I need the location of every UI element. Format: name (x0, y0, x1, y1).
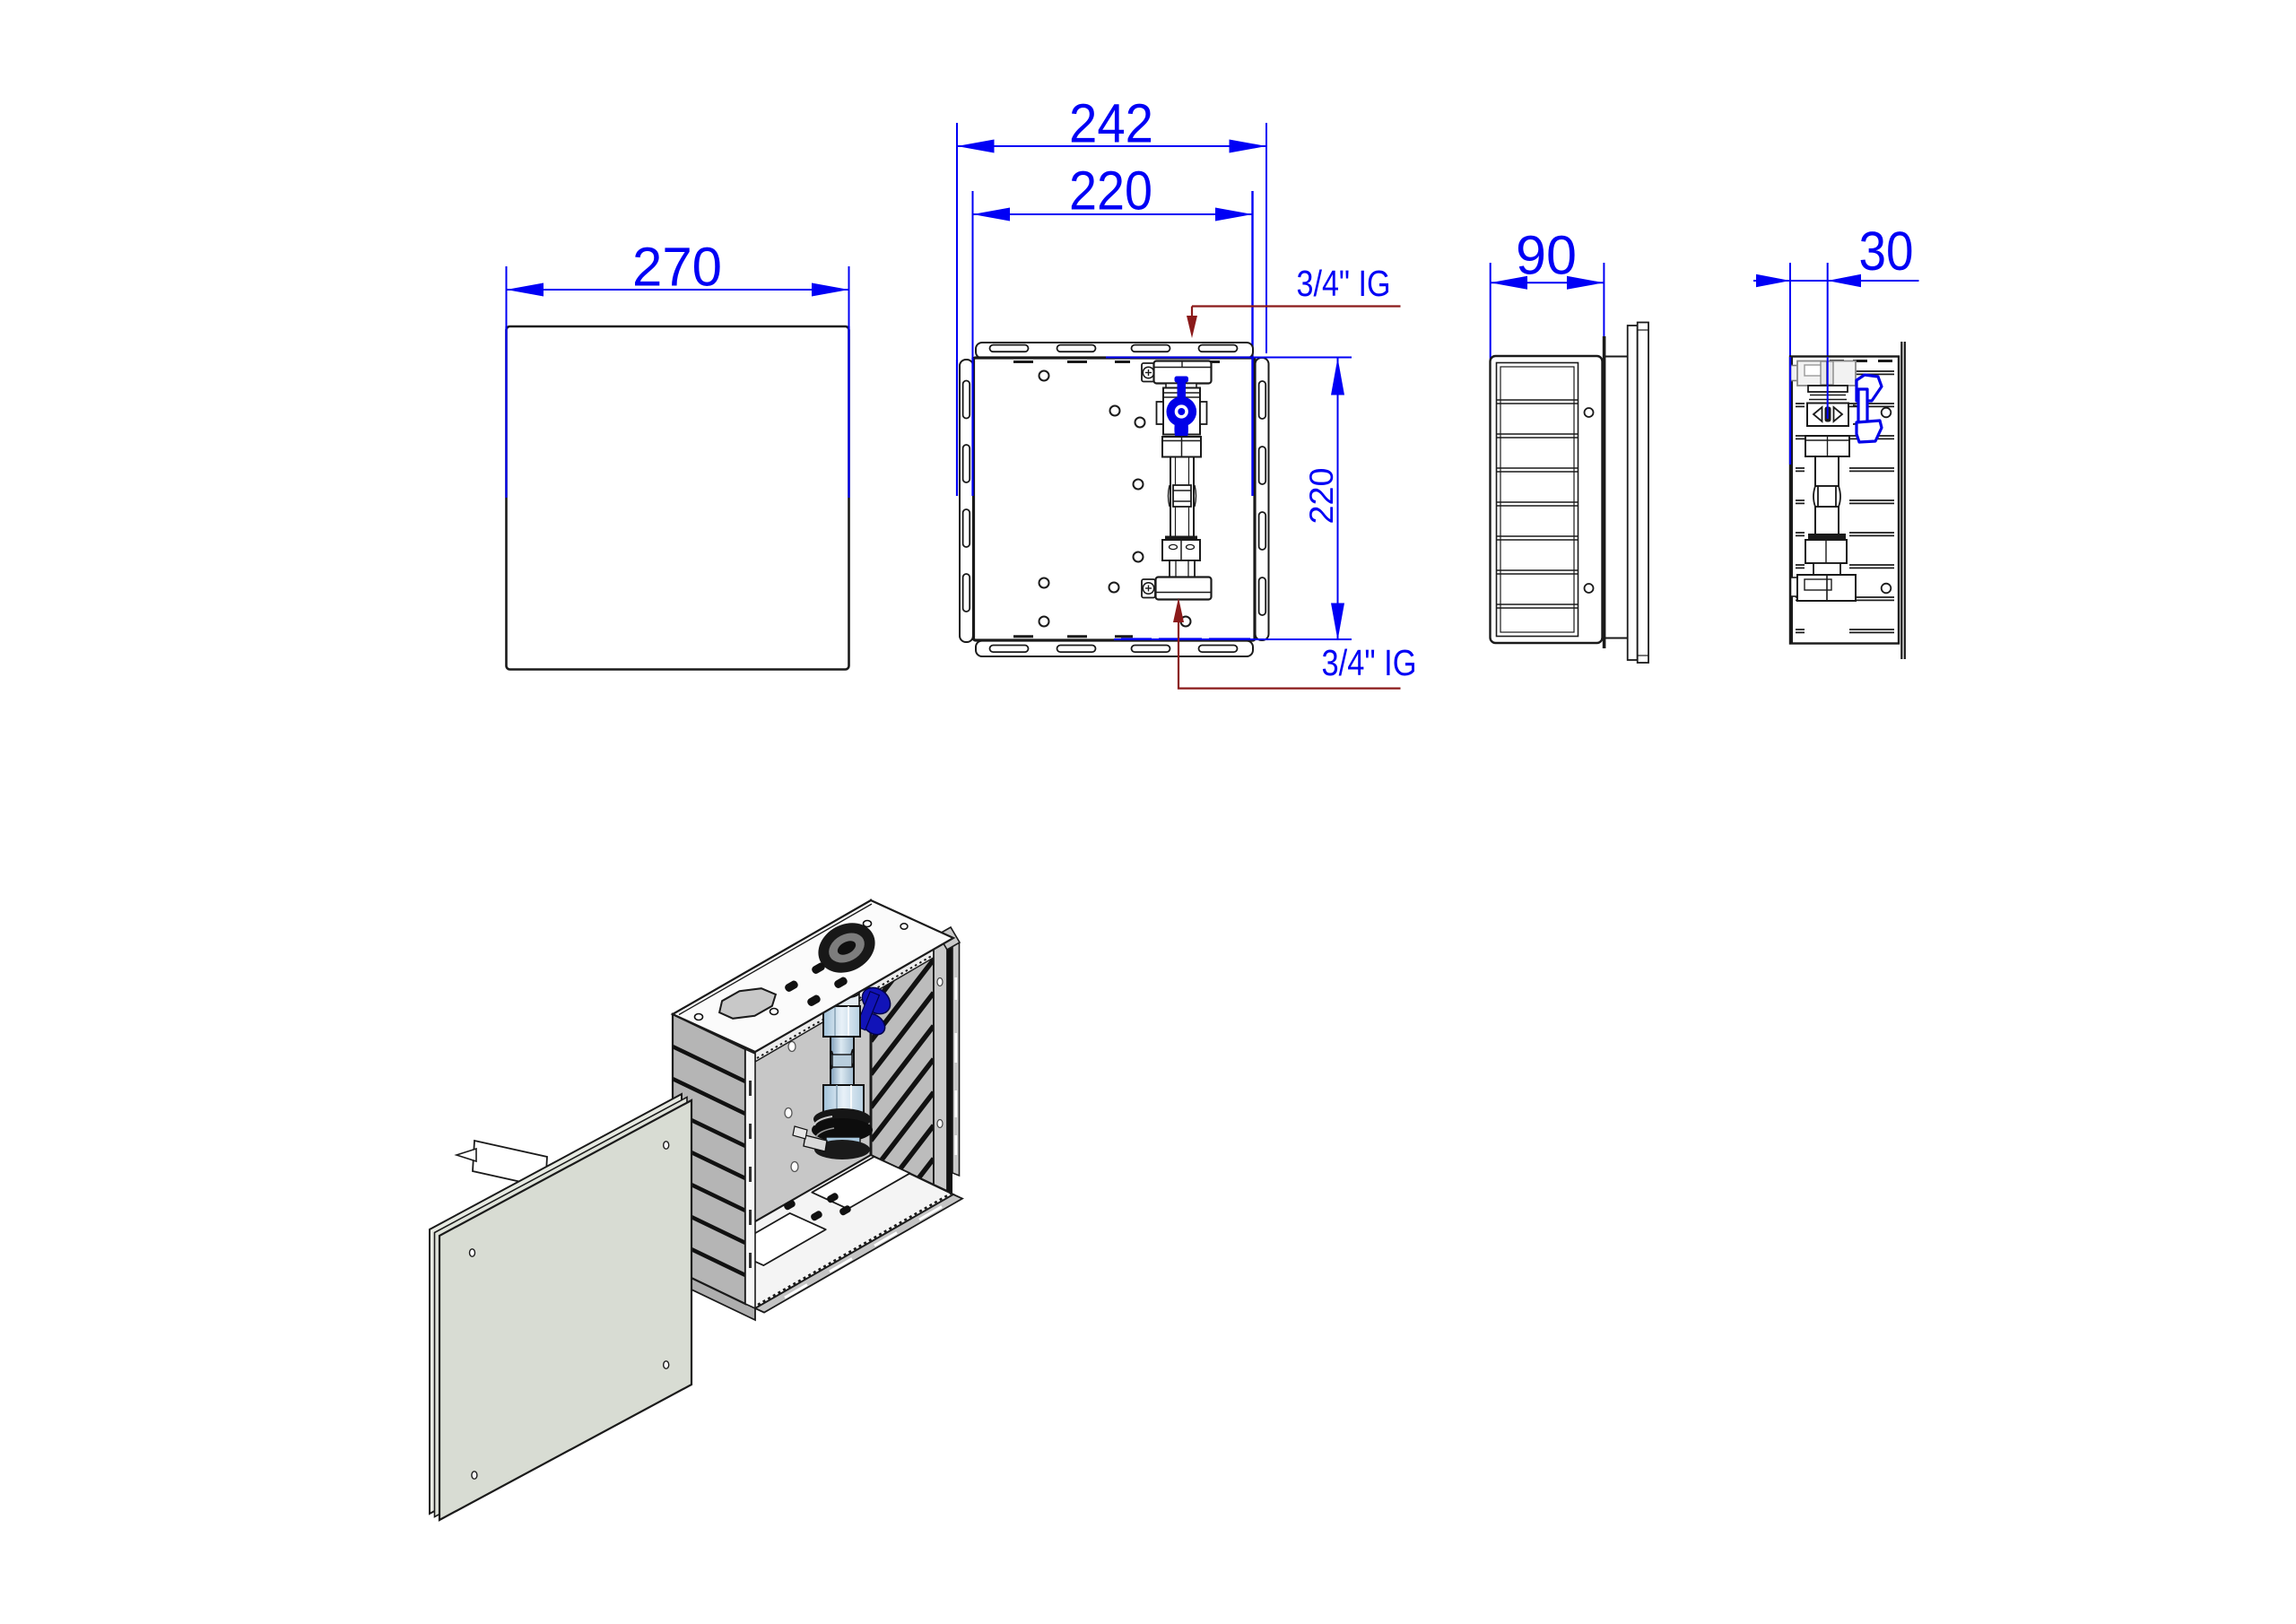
svg-text:220: 220 (1069, 161, 1152, 221)
svg-text:220: 220 (1303, 468, 1340, 525)
svg-text:90: 90 (1516, 225, 1577, 286)
svg-text:3/4" IG: 3/4" IG (1322, 642, 1417, 683)
svg-text:270: 270 (632, 237, 722, 298)
svg-text:30: 30 (1859, 221, 1914, 282)
svg-text:3/4" IG: 3/4" IG (1297, 263, 1391, 304)
svg-text:242: 242 (1069, 93, 1153, 154)
